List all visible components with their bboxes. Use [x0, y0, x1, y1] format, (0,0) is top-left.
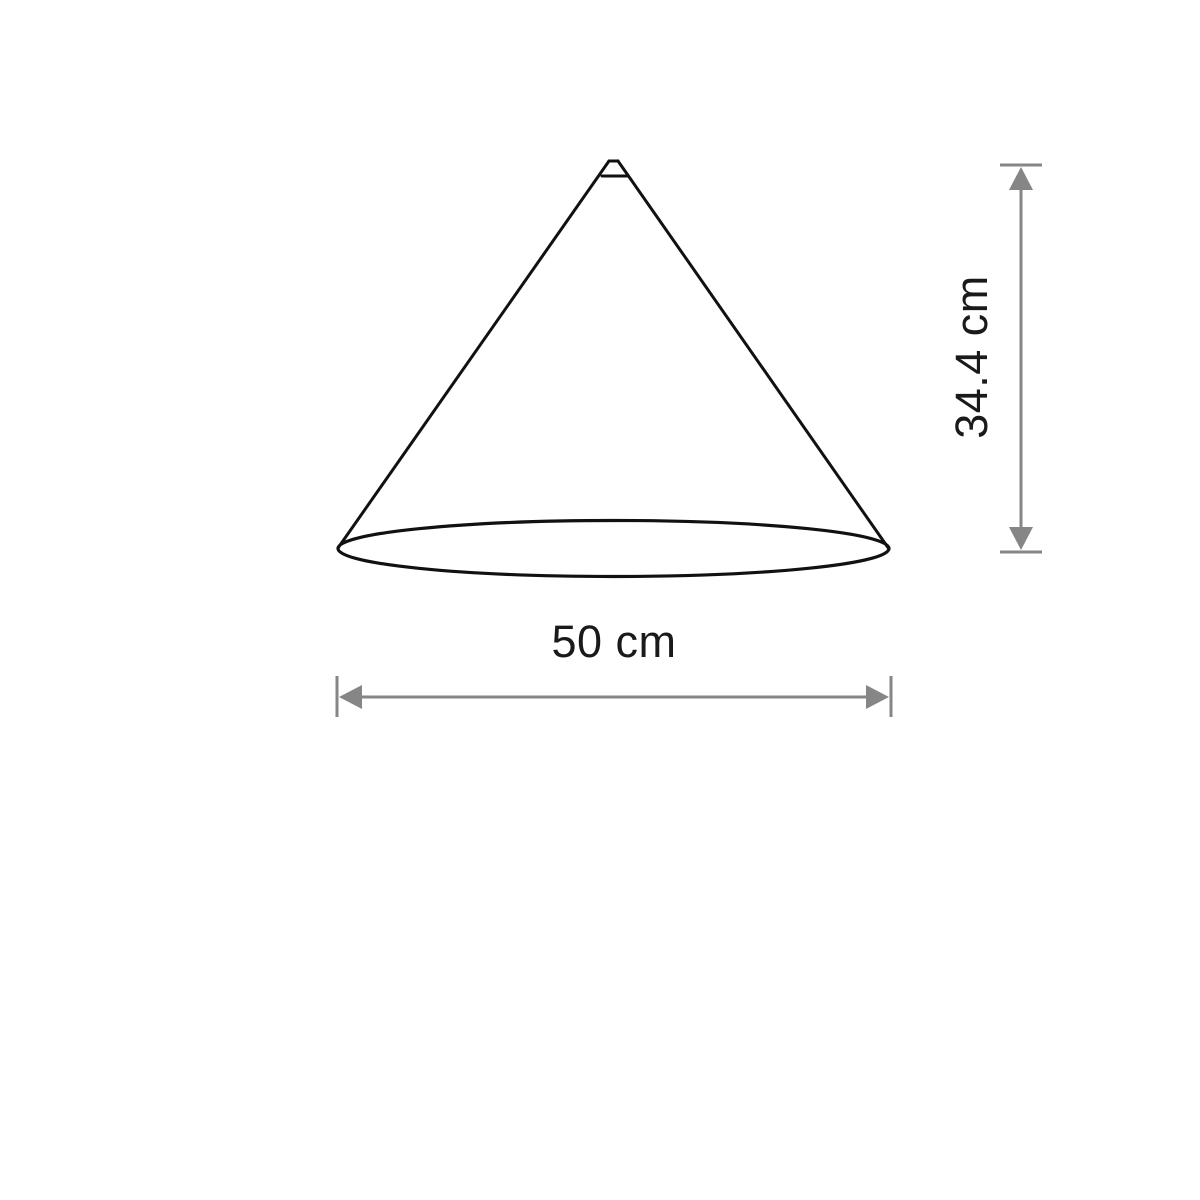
width-dimension-arrowhead-left-icon [339, 685, 362, 709]
cone-left-edge [338, 161, 609, 548]
height-dimension: 34.4 cm [946, 165, 1042, 552]
height-dimension-arrowhead-down-icon [1009, 527, 1033, 550]
cone-right-edge [618, 161, 889, 549]
height-dimension-label: 34.4 cm [946, 275, 997, 439]
width-dimension: 50 cm [337, 616, 891, 717]
diagram-canvas: 34.4 cm 50 cm [0, 0, 1200, 1200]
width-dimension-label: 50 cm [551, 616, 676, 667]
cone-base-rim-ellipse [338, 521, 889, 577]
cone-outline [338, 161, 889, 577]
width-dimension-arrowhead-right-icon [866, 685, 889, 709]
cone-dimension-drawing: 34.4 cm 50 cm [0, 0, 1200, 1200]
height-dimension-arrowhead-up-icon [1009, 167, 1033, 190]
